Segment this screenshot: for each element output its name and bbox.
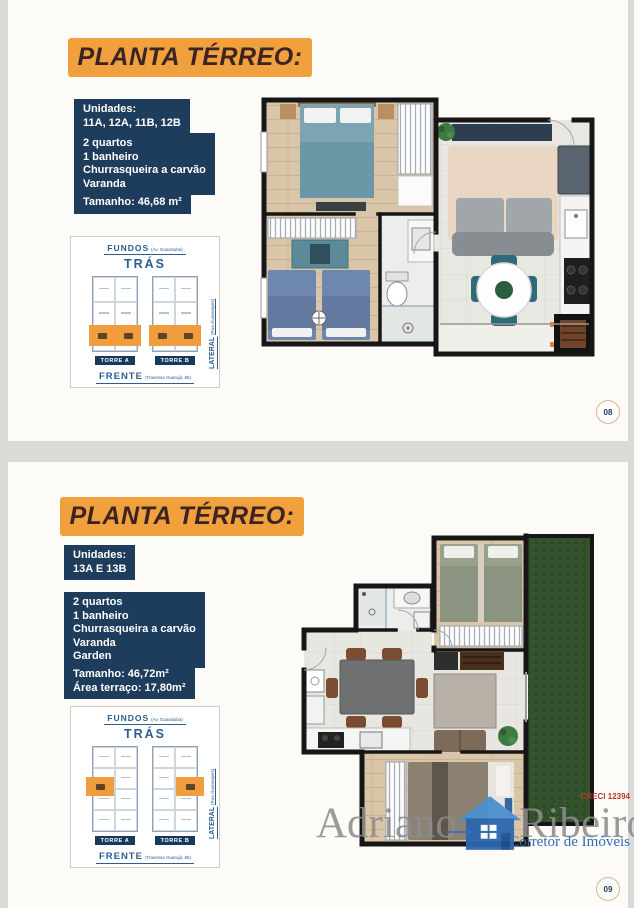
bed-runner xyxy=(478,544,484,622)
unit-mark xyxy=(184,333,193,339)
frente-label: FRENTE (Travessa Guarujá, 85) xyxy=(96,371,194,384)
tower-b-badge: TORRE B xyxy=(155,836,196,845)
bath-sink xyxy=(408,220,434,262)
tower-a-outline xyxy=(92,746,138,832)
units-value: 13A E 13B xyxy=(73,563,126,577)
washer xyxy=(414,612,430,628)
fan-icon xyxy=(312,311,326,325)
tower-b-column: TORRE B xyxy=(152,746,198,845)
feature-line: Garden xyxy=(73,650,196,664)
towers-diagram: TORRE A TORRE B xyxy=(92,276,198,365)
tower-b-badge: TORRE B xyxy=(155,356,196,365)
shower xyxy=(360,586,386,630)
window xyxy=(261,132,267,172)
units-box: Unidades: 11A, 12A, 11B, 12B xyxy=(74,99,190,134)
tower-b-outline xyxy=(152,746,198,832)
kitchen-counter xyxy=(558,146,592,316)
churrasqueira xyxy=(460,652,504,670)
plant-icon xyxy=(437,123,455,141)
brochure-page-09: PLANTA TÉRREO: Unidades: 13A E 13B 2 qua… xyxy=(8,462,628,908)
fundos-label: FUNDOS (Av. Guaratuba) xyxy=(104,713,186,725)
page-number-badge: 09 xyxy=(596,877,620,901)
highlighted-units-11a-12a xyxy=(89,325,141,346)
feature-line: 1 banheiro xyxy=(73,610,196,624)
page-title: PLANTA TÉRREO: xyxy=(77,43,302,72)
shower xyxy=(382,306,436,344)
tv-console xyxy=(452,124,552,141)
feature-line: 2 quartos xyxy=(83,137,206,151)
double-bed xyxy=(298,102,376,198)
plant-icon xyxy=(498,726,518,746)
single-bed-right xyxy=(322,270,370,340)
toilet xyxy=(386,272,408,306)
tras-label: TRÁS xyxy=(124,257,166,271)
double-bed xyxy=(408,762,514,840)
feature-line: Varanda xyxy=(73,637,196,651)
tower-a-column: TORRE A xyxy=(92,746,138,845)
wardrobe xyxy=(398,104,432,206)
size-line: Tamanho: 46,72m² xyxy=(73,668,186,682)
highlighted-unit-13b xyxy=(176,777,204,796)
page-number-badge: 08 xyxy=(596,400,620,424)
units-label: Unidades: xyxy=(73,549,126,563)
feature-line: Churrasqueira a carvão xyxy=(83,164,206,178)
closet-hatched xyxy=(268,218,356,238)
single-bed-left xyxy=(268,270,316,340)
twin-bed-right xyxy=(484,544,522,622)
unit-mark xyxy=(96,784,105,790)
sofa xyxy=(452,198,554,256)
size-line: Tamanho: 46,68 m² xyxy=(83,196,182,210)
tower-b-outline xyxy=(152,276,198,352)
unit-mark xyxy=(186,784,195,790)
lateral-label: LATERAL (Rua Guararapes) xyxy=(209,269,216,369)
churrasqueira xyxy=(550,314,592,354)
kitchen-left-appliances xyxy=(306,670,324,724)
kitchen-counter xyxy=(304,728,410,752)
closet-hatched xyxy=(386,762,406,840)
highlighted-units-11b-12b xyxy=(149,325,201,346)
features-box: 2 quartos 1 banheiro Churrasqueira a car… xyxy=(64,592,205,668)
unit-mark xyxy=(158,333,167,339)
feature-line: 1 banheiro xyxy=(83,151,206,165)
lateral-label: LATERAL (Rua Guararapes) xyxy=(209,739,216,839)
wardrobe-unit xyxy=(434,674,496,728)
units-value: 11A, 12A, 11B, 12B xyxy=(83,117,181,131)
tower-a-badge: TORRE A xyxy=(95,356,136,365)
fundos-label: FUNDOS (Av. Guaratuba) xyxy=(104,243,186,255)
counter-dark xyxy=(434,652,458,670)
units-label: Unidades: xyxy=(83,103,181,117)
feature-line: Churrasqueira a carvão xyxy=(73,623,196,637)
frente-label: FRENTE (Travessa Guarujá, 85) xyxy=(96,851,194,864)
page-title-banner: PLANTA TÉRREO: xyxy=(68,38,312,77)
page-title: PLANTA TÉRREO: xyxy=(69,502,294,531)
highlighted-unit-13a xyxy=(86,777,114,796)
unit-mark xyxy=(98,333,107,339)
feature-line: 2 quartos xyxy=(73,596,196,610)
location-diagram: FUNDOS (Av. Guaratuba) TRÁS TORRE A xyxy=(70,706,220,868)
brochure-page-08: PLANTA TÉRREO: Unidades: 11A, 12A, 11B, … xyxy=(8,0,628,441)
dresser xyxy=(316,202,366,211)
tower-b-column: TORRE B xyxy=(152,276,198,365)
sofa xyxy=(434,730,486,752)
wardrobe-2 xyxy=(292,240,348,268)
tower-a-column: TORRE A xyxy=(92,276,138,365)
units-box: Unidades: 13A E 13B xyxy=(64,545,135,580)
location-diagram: FUNDOS (Av. Guaratuba) TRÁS TORRE A xyxy=(70,236,220,388)
bath-sink xyxy=(394,588,430,608)
size-box: Tamanho: 46,68 m² xyxy=(74,192,191,214)
size-line: Área terraço: 17,80m² xyxy=(73,682,186,696)
floorplan-units-13 xyxy=(282,522,602,854)
size-box: Tamanho: 46,72m² Área terraço: 17,80m² xyxy=(64,664,195,699)
page-title-banner: PLANTA TÉRREO: xyxy=(60,497,304,536)
window xyxy=(261,278,267,318)
features-box: 2 quartos 1 banheiro Churrasqueira a car… xyxy=(74,133,215,195)
floorplan-units-11-12 xyxy=(258,92,598,373)
towers-diagram: TORRE A TORRE B xyxy=(92,746,198,845)
tower-a-outline xyxy=(92,276,138,352)
tras-label: TRÁS xyxy=(124,727,166,741)
closet-hatched xyxy=(440,626,522,646)
twin-bed-left xyxy=(440,544,478,622)
tower-a-badge: TORRE A xyxy=(95,836,136,845)
garden xyxy=(528,536,592,824)
unit-mark xyxy=(124,333,133,339)
feature-line: Varanda xyxy=(83,178,206,192)
